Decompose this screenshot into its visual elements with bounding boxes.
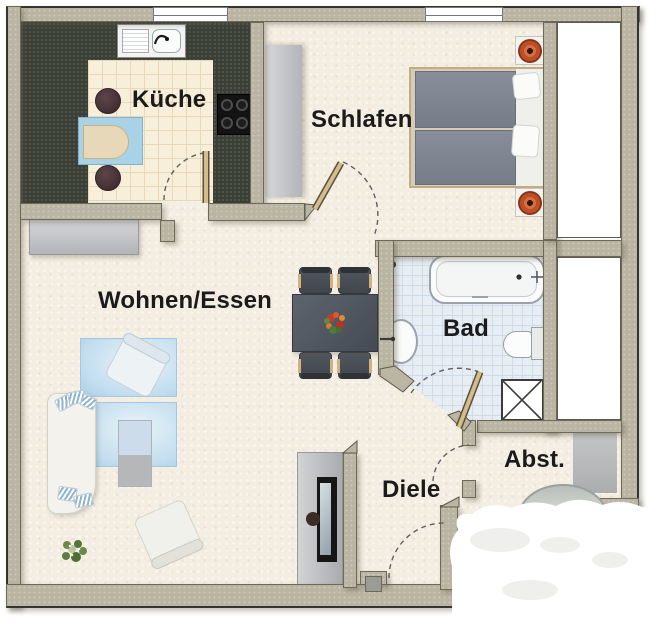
kitchen-sink bbox=[117, 24, 186, 58]
light-well bbox=[557, 257, 621, 420]
wall bbox=[208, 203, 305, 221]
floor-shaft bbox=[365, 576, 382, 592]
tv bbox=[317, 477, 337, 562]
side-table bbox=[118, 420, 152, 487]
wall bbox=[543, 240, 557, 433]
wall bbox=[343, 452, 357, 588]
room-label-abstellraum: Abst. bbox=[504, 446, 565, 474]
toilet bbox=[503, 331, 532, 358]
kitchen-table-top bbox=[83, 125, 129, 159]
wall bbox=[6, 6, 21, 608]
room-label-bad: Bad bbox=[443, 315, 489, 343]
kitchen-chair bbox=[95, 88, 121, 114]
duvet bbox=[415, 71, 516, 128]
kitchen-chair bbox=[95, 165, 121, 191]
wall bbox=[250, 22, 264, 205]
sink-basin bbox=[152, 29, 181, 53]
window bbox=[425, 7, 503, 22]
dining-chair bbox=[299, 352, 332, 379]
wall bbox=[378, 240, 394, 375]
wall bbox=[160, 220, 175, 242]
wall bbox=[462, 420, 476, 446]
pillow bbox=[512, 72, 542, 101]
cooktop bbox=[217, 94, 251, 135]
wall bbox=[621, 6, 639, 513]
floor-plan: Küche Schlafen Wohnen/Essen Bad Diele Ab… bbox=[0, 0, 666, 643]
room-label-kueche: Küche bbox=[132, 86, 206, 114]
room-label-wohnen-essen: Wohnen/Essen bbox=[98, 287, 272, 315]
burner bbox=[221, 99, 233, 111]
sideboard bbox=[29, 219, 139, 255]
sink-drainer bbox=[122, 29, 149, 53]
tv-mount bbox=[306, 512, 320, 526]
burner bbox=[221, 117, 233, 129]
room-label-diele: Diele bbox=[382, 476, 440, 504]
wall bbox=[477, 420, 622, 433]
light-well bbox=[557, 22, 621, 238]
bedside-lamp bbox=[518, 191, 542, 215]
window bbox=[153, 7, 228, 22]
wall bbox=[462, 480, 476, 498]
wall bbox=[6, 584, 460, 608]
dining-table bbox=[292, 294, 378, 352]
storage-shelf bbox=[573, 429, 617, 493]
wardrobe bbox=[265, 45, 302, 197]
bathtub-inner bbox=[436, 261, 537, 297]
dining-chair bbox=[338, 352, 371, 379]
wall bbox=[6, 6, 640, 22]
dining-chair bbox=[338, 267, 371, 294]
wall bbox=[375, 240, 622, 257]
bathtub bbox=[429, 255, 545, 304]
burner bbox=[236, 99, 248, 111]
kitchen-table bbox=[78, 117, 143, 165]
shaft-marker bbox=[501, 379, 544, 421]
wall bbox=[20, 203, 162, 220]
tv-screen bbox=[320, 483, 331, 555]
wall bbox=[543, 22, 557, 240]
dining-chair bbox=[299, 267, 332, 294]
wall bbox=[440, 505, 458, 590]
burner bbox=[236, 117, 248, 129]
duvet bbox=[415, 130, 516, 185]
pillow bbox=[511, 124, 540, 158]
bedside-lamp bbox=[518, 39, 542, 63]
room-label-schlafen: Schlafen bbox=[311, 106, 413, 134]
